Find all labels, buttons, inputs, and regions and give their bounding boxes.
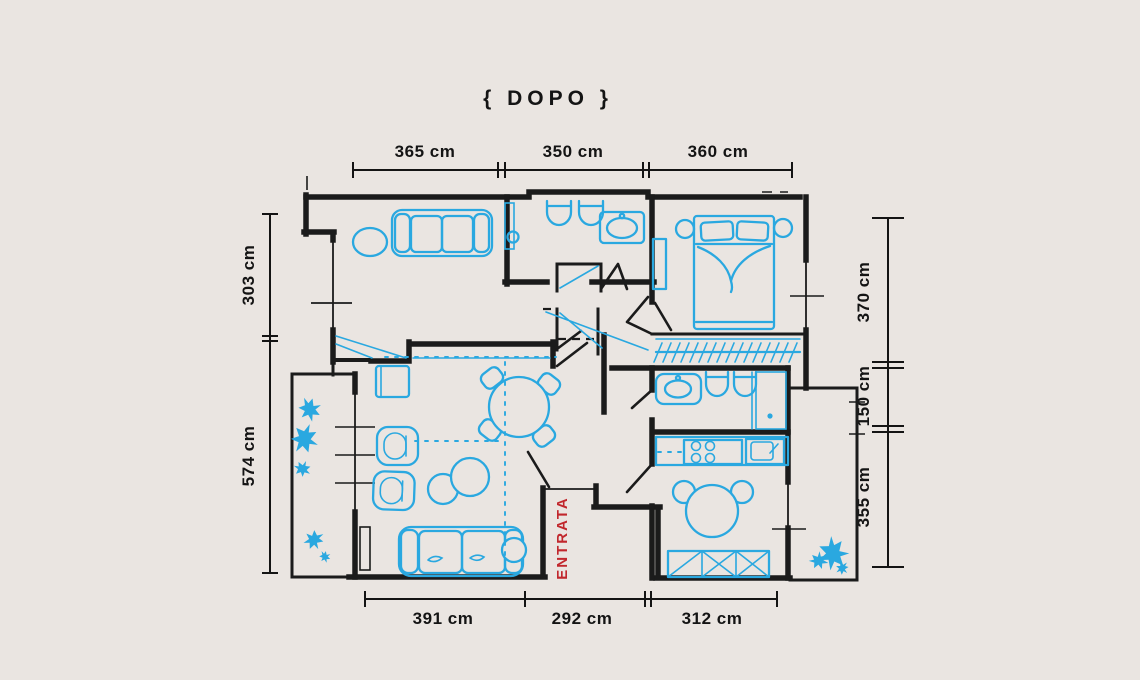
dimension-line-top: 365 cm 350 cm 360 cm <box>353 142 792 178</box>
kitchen-cabinets-icon <box>668 551 769 577</box>
bathroom1-fixtures <box>505 201 644 249</box>
nightstand-icon <box>676 220 694 238</box>
dimension-line-bottom: 391 cm 292 cm 312 cm <box>365 591 777 628</box>
coffee-tables-icon <box>428 458 489 504</box>
dimension-label-top-1: 365 cm <box>395 142 456 161</box>
toilet-icon <box>547 201 571 225</box>
bedroom-door <box>655 303 671 330</box>
bathroom2-door <box>632 390 652 408</box>
double-bed-icon <box>694 216 774 329</box>
bathroom1-double-door <box>601 264 627 289</box>
dimension-label-top-2: 350 cm <box>543 142 604 161</box>
entrance-label: ENTRATA <box>554 496 571 579</box>
kitchen-table-icon <box>673 481 753 537</box>
dimension-label-right-1: 370 cm <box>854 262 873 323</box>
dimension-label-top-3: 360 cm <box>688 142 749 161</box>
plant-icon <box>303 529 325 551</box>
bathroom2-fixtures <box>656 372 786 429</box>
washbasin-icon <box>656 374 701 404</box>
dimension-line-right: 370 cm 150 cm 355 cm <box>854 218 904 567</box>
armchair-icon <box>377 427 418 465</box>
floor-plan: { DOPO } 365 cm 350 cm 360 cm 303 cm 574… <box>0 0 1140 680</box>
floor-plan-canvas: { DOPO } 365 cm 350 cm 360 cm 303 cm 574… <box>0 0 1140 680</box>
entrance-door <box>528 452 549 487</box>
side-table-icon <box>376 366 409 397</box>
kitchen-door <box>627 463 653 492</box>
washbasin-icon <box>600 212 644 243</box>
dining-table-icon <box>476 365 562 449</box>
toilet-icon <box>706 372 728 396</box>
plant-icon <box>292 458 314 480</box>
wardrobe-rail-icon <box>654 339 800 362</box>
dimension-line-left: 303 cm 574 cm <box>239 214 278 573</box>
kitchen-counter-icon <box>656 437 788 465</box>
hallway-pivot-door <box>627 297 652 334</box>
bedroom-furniture <box>546 216 800 362</box>
nightstand-icon <box>774 219 792 237</box>
kitchen-furniture <box>656 437 788 577</box>
pouf-icon <box>353 228 387 256</box>
plant-icon <box>296 396 323 423</box>
living-room-furniture <box>373 357 563 576</box>
plant-icon <box>318 550 331 563</box>
dimension-label-bottom-2: 292 cm <box>552 609 613 628</box>
sofa-icon <box>392 210 492 256</box>
dimension-label-left-2: 574 cm <box>239 426 258 487</box>
plan-title: { DOPO } <box>483 87 613 110</box>
plant-icon <box>812 532 854 574</box>
armchair-icon <box>373 471 415 510</box>
sliding-door-icon <box>336 336 406 358</box>
dimension-label-bottom-1: 391 cm <box>413 609 474 628</box>
interior-walls <box>371 197 806 578</box>
dimension-label-left-1: 303 cm <box>239 245 258 306</box>
dimension-label-bottom-3: 312 cm <box>682 609 743 628</box>
